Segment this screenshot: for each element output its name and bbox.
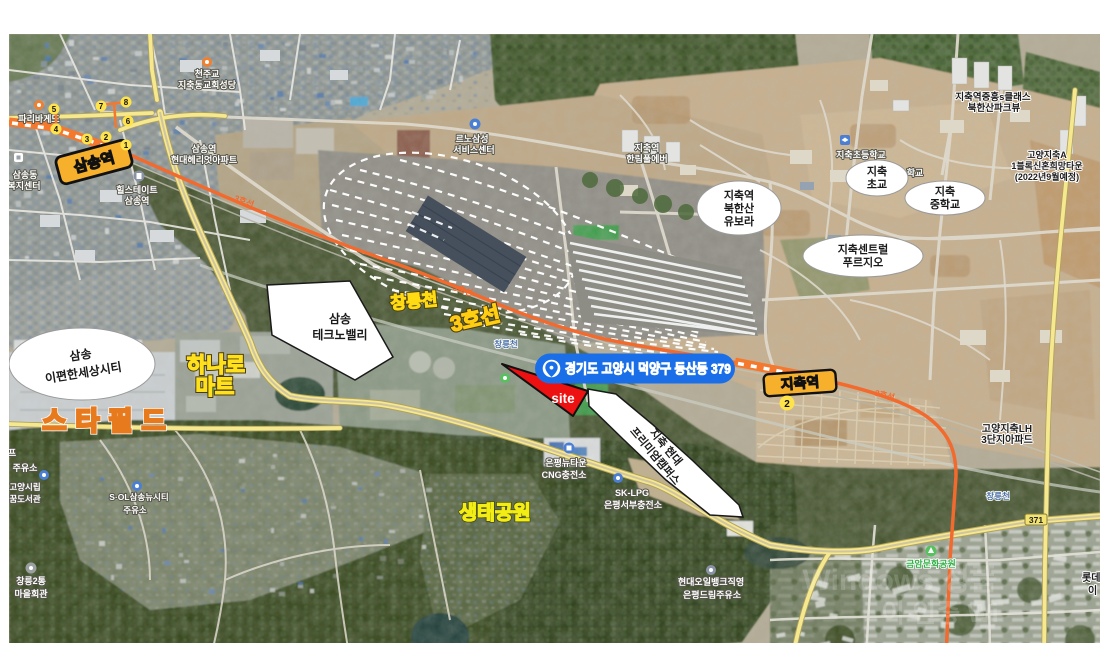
svg-text:지축센트럴: 지축센트럴 — [838, 242, 889, 256]
svg-text:1블록신혼희망타운: 1블록신혼희망타운 — [1011, 160, 1082, 171]
svg-text:서비스센터: 서비스센터 — [453, 144, 494, 155]
svg-text:주유소: 주유소 — [123, 505, 147, 515]
svg-text:생태공원: 생태공원 — [459, 502, 531, 524]
svg-text:힐스테이트: 힐스테이트 — [116, 184, 158, 195]
svg-text:초교: 초교 — [867, 178, 887, 191]
svg-text:5: 5 — [52, 105, 57, 114]
svg-text:3: 3 — [85, 135, 90, 144]
svg-text:중학교: 중학교 — [930, 197, 960, 211]
svg-text:지축초등학교: 지축초등학교 — [836, 149, 886, 160]
svg-text:고양시립: 고양시립 — [9, 482, 40, 492]
svg-text:고양지축A: 고양지축A — [1027, 149, 1067, 160]
svg-text:은평드림주유소: 은평드림주유소 — [683, 589, 742, 600]
svg-text:르노삼성: 르노삼성 — [455, 133, 488, 144]
svg-text:테크노밸리: 테크노밸리 — [312, 327, 367, 342]
svg-text:7: 7 — [99, 102, 104, 111]
svg-text:지축동교회성당: 지축동교회성당 — [178, 79, 237, 90]
svg-text:1: 1 — [124, 141, 129, 150]
svg-text:삼송역: 삼송역 — [125, 195, 150, 206]
svg-text:4: 4 — [54, 125, 59, 134]
svg-text:유보라: 유보라 — [724, 214, 755, 228]
svg-text:북한산: 북한산 — [724, 201, 754, 215]
svg-text:고양지축LH: 고양지축LH — [982, 422, 1032, 435]
svg-text:현대헤리엇아파트: 현대헤리엇아파트 — [171, 154, 238, 165]
svg-text:마트: 마트 — [196, 376, 235, 399]
svg-text:북한산파크뷰: 북한산파크뷰 — [968, 102, 1021, 114]
svg-text:경기도 고양시 덕양구 동산동 379: 경기도 고양시 덕양구 동산동 379 — [565, 361, 731, 377]
svg-text:푸르지오: 푸르지오 — [843, 255, 883, 269]
svg-text:창릉천: 창릉천 — [986, 491, 1010, 501]
svg-text:Windows 정품: Windows 정품 — [803, 564, 998, 597]
svg-text:지축역: 지축역 — [724, 188, 754, 202]
svg-text:은평뉴타운: 은평뉴타운 — [545, 457, 586, 468]
svg-text:지축역중흥s클래스: 지축역중흥s클래스 — [955, 91, 1030, 103]
svg-text:지축: 지축 — [867, 164, 887, 178]
svg-text:SK-LPG: SK-LPG — [615, 488, 649, 498]
svg-text:지축역: 지축역 — [635, 142, 660, 153]
svg-text:site: site — [551, 391, 575, 406]
svg-text:마을회관: 마을회관 — [14, 588, 48, 599]
svg-text:2: 2 — [784, 399, 790, 410]
svg-text:프: 프 — [8, 448, 17, 458]
svg-text:현대오일뱅크직영: 현대오일뱅크직영 — [678, 576, 744, 587]
svg-text:8: 8 — [124, 98, 129, 107]
svg-text:파리바게뜨: 파리바게뜨 — [18, 113, 59, 124]
svg-text:삼송동: 삼송동 — [13, 169, 38, 180]
svg-text:창릉2통: 창릉2통 — [16, 575, 46, 586]
svg-text:한림풀에버: 한림풀에버 — [626, 153, 667, 164]
svg-text:2: 2 — [104, 133, 109, 142]
svg-text:하나로: 하나로 — [187, 354, 245, 377]
svg-text:롯데캐: 롯데캐 — [1082, 571, 1100, 584]
svg-text:주유소: 주유소 — [13, 463, 39, 473]
svg-text:CNG충전소: CNG충전소 — [542, 469, 588, 480]
svg-text:은평서부충전소: 은평서부충전소 — [604, 499, 663, 510]
svg-text:(2022년9월예정): (2022년9월예정) — [1015, 171, 1079, 182]
svg-text:S·OL삼송뉴시티: S·OL삼송뉴시티 — [109, 492, 168, 502]
svg-text:복지센터: 복지센터 — [7, 180, 40, 191]
svg-text:3단지아파드: 3단지아파드 — [981, 433, 1033, 446]
svg-text:이: 이 — [1088, 584, 1097, 597]
svg-text:371: 371 — [1029, 515, 1043, 525]
svg-text:꿈도서관: 꿈도서관 — [9, 494, 40, 504]
svg-text:창릉천: 창릉천 — [494, 339, 518, 349]
svg-text:학교: 학교 — [907, 167, 924, 178]
svg-text:지축: 지축 — [935, 184, 955, 198]
svg-text:삼송역: 삼송역 — [192, 143, 217, 154]
svg-text:6: 6 — [126, 117, 131, 126]
svg-text:삼송: 삼송 — [329, 311, 351, 326]
svg-text:이 인증 Wi: 이 인증 Wi — [881, 598, 999, 628]
svg-text:천주교: 천주교 — [195, 69, 220, 79]
svg-text:지축역: 지축역 — [780, 374, 820, 393]
